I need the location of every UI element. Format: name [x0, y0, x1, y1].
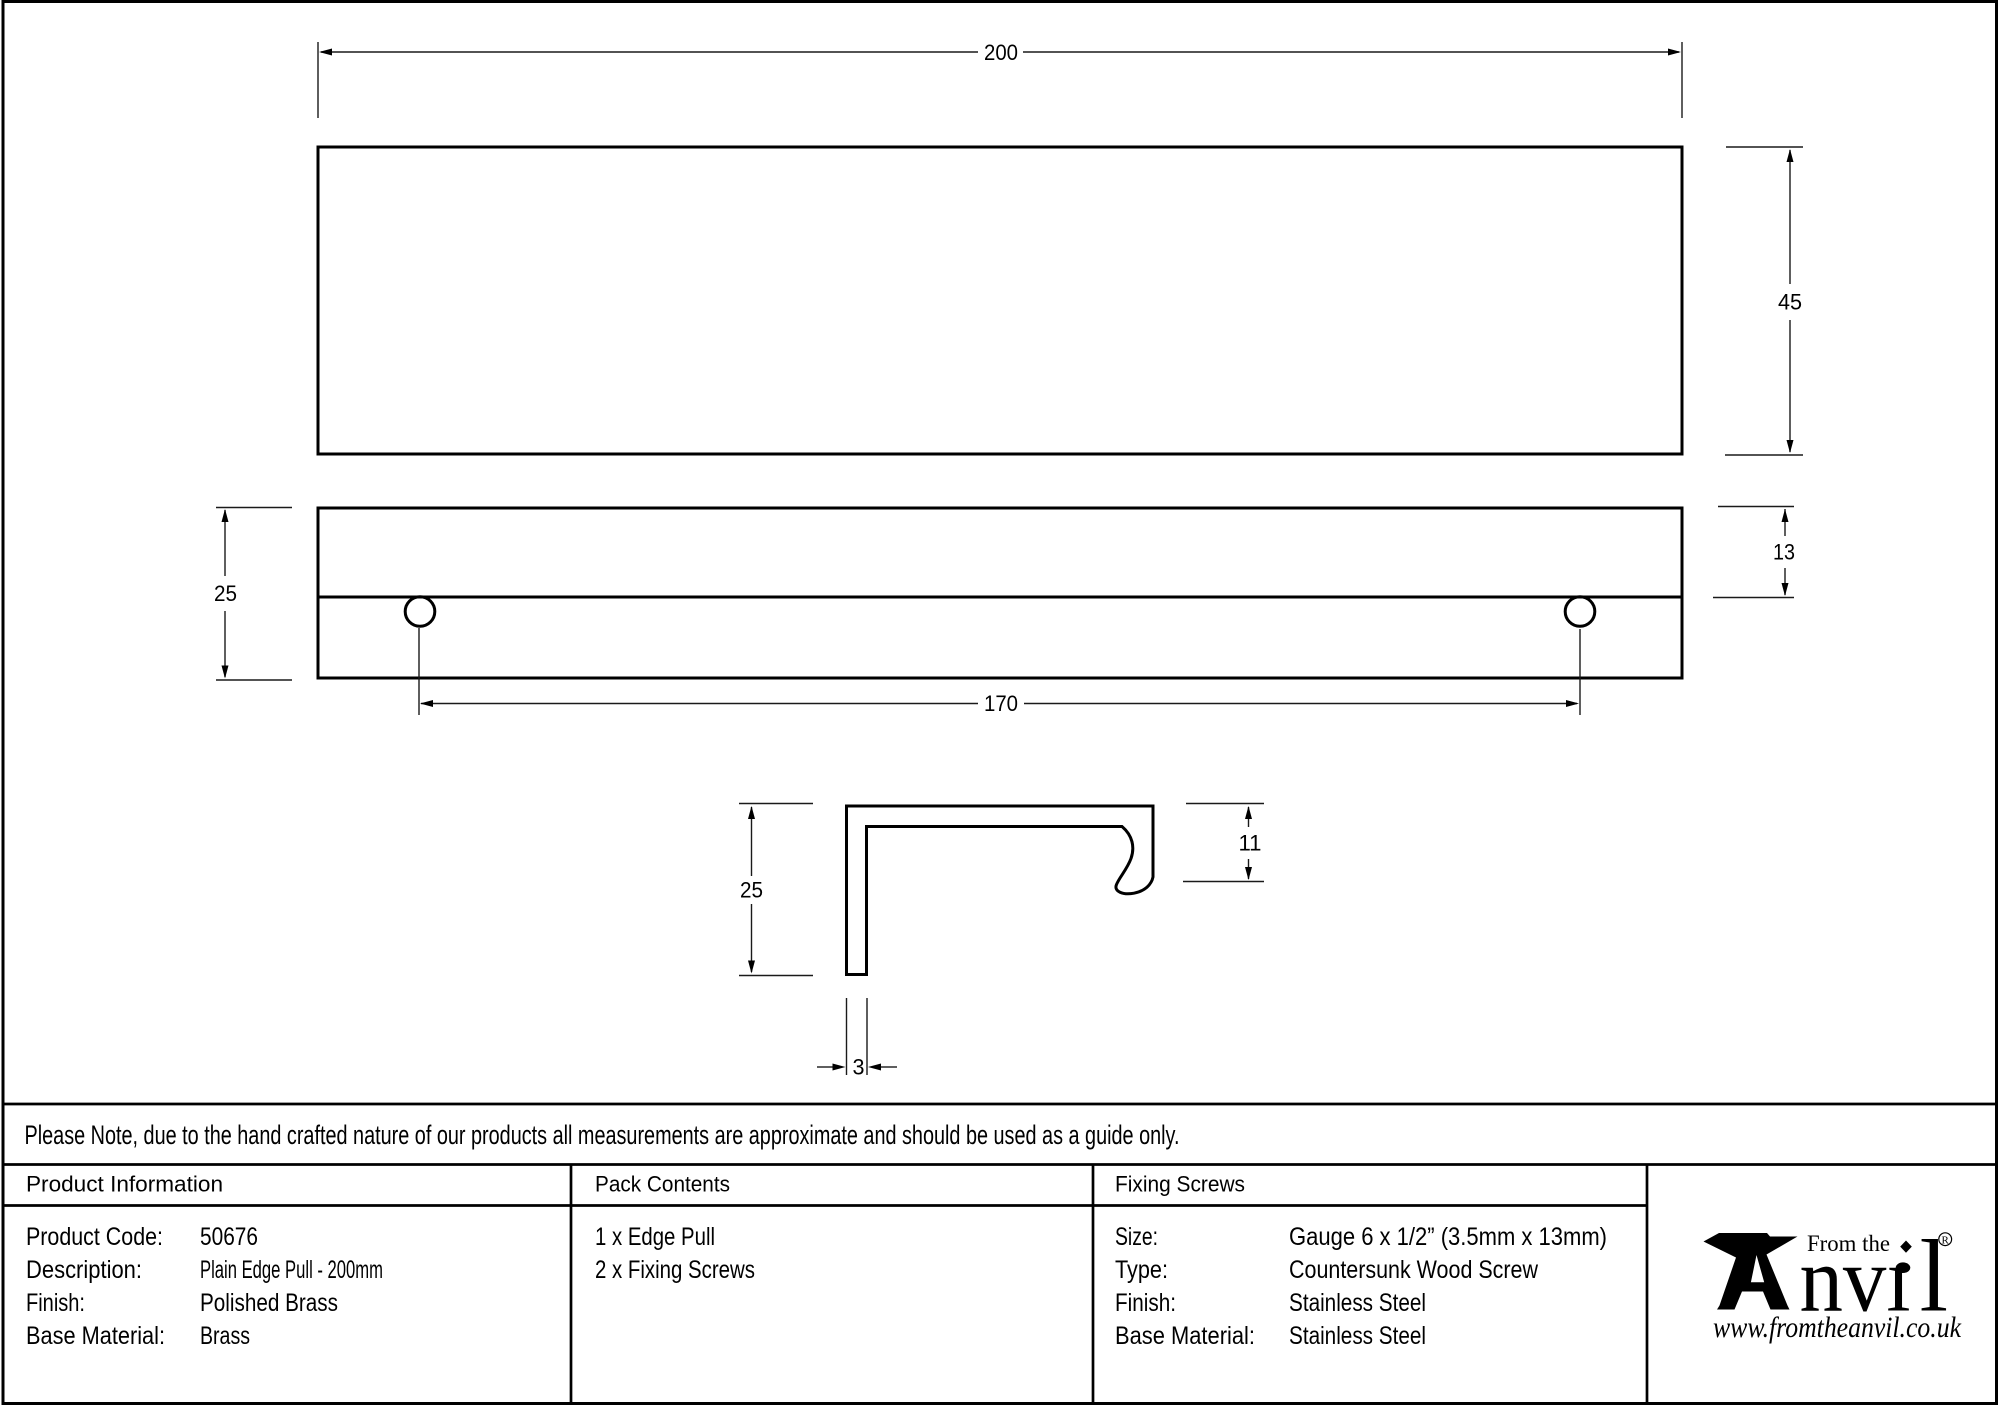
svg-text:25: 25	[740, 878, 763, 903]
svg-text:Type:: Type:	[1115, 1256, 1168, 1284]
svg-text:Base Material:: Base Material:	[26, 1322, 165, 1350]
svg-text:www.fromtheanvil.co.uk: www.fromtheanvil.co.uk	[1713, 1311, 1962, 1344]
svg-text:Base Material:: Base Material:	[1115, 1322, 1255, 1350]
svg-text:R: R	[1942, 1234, 1950, 1246]
svg-text:Product Information: Product Information	[26, 1172, 223, 1197]
svg-text:200: 200	[984, 40, 1018, 65]
svg-text:Countersunk Wood Screw: Countersunk Wood Screw	[1289, 1256, 1539, 1284]
svg-text:Description:: Description:	[26, 1256, 142, 1284]
svg-text:Polished Brass: Polished Brass	[200, 1289, 338, 1317]
svg-text:1 x Edge Pull: 1 x Edge Pull	[595, 1223, 715, 1251]
svg-text:170: 170	[984, 691, 1018, 716]
svg-text:3: 3	[853, 1055, 865, 1080]
svg-text:2 x Fixing Screws: 2 x Fixing Screws	[595, 1256, 755, 1284]
svg-text:Gauge 6 x 1/2” (3.5mm x 13mm): Gauge 6 x 1/2” (3.5mm x 13mm)	[1289, 1223, 1607, 1251]
svg-text:Please Note, due to the hand c: Please Note, due to the hand crafted nat…	[25, 1120, 1180, 1150]
svg-text:11: 11	[1239, 831, 1262, 856]
svg-text:Plain Edge Pull - 200mm: Plain Edge Pull - 200mm	[200, 1256, 383, 1284]
svg-text:Brass: Brass	[200, 1322, 250, 1350]
svg-text:25: 25	[214, 581, 237, 606]
svg-text:Finish:: Finish:	[26, 1289, 85, 1317]
svg-text:Size:: Size:	[1115, 1223, 1158, 1251]
svg-text:Stainless Steel: Stainless Steel	[1289, 1322, 1426, 1350]
svg-text:Product Code:: Product Code:	[26, 1223, 163, 1251]
svg-text:13: 13	[1773, 540, 1795, 565]
svg-text:45: 45	[1778, 290, 1802, 315]
svg-text:Stainless Steel: Stainless Steel	[1289, 1289, 1426, 1317]
svg-text:50676: 50676	[200, 1223, 258, 1251]
svg-text:Finish:: Finish:	[1115, 1289, 1176, 1317]
svg-text:Fixing Screws: Fixing Screws	[1115, 1172, 1245, 1197]
svg-text:Pack Contents: Pack Contents	[595, 1172, 730, 1197]
